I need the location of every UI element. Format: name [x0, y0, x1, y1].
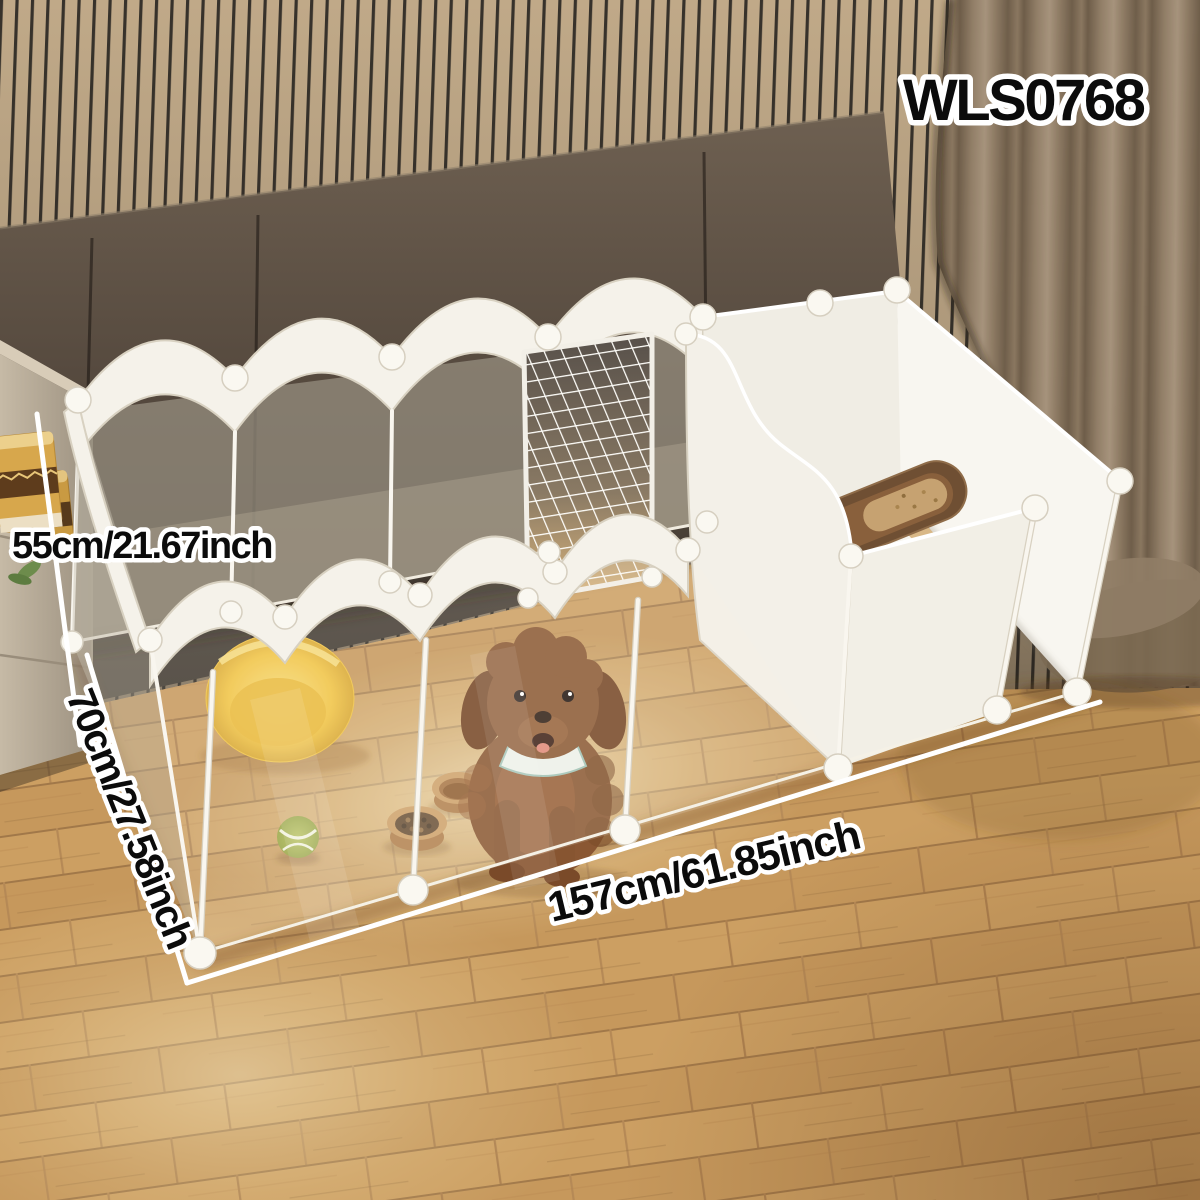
- product-code-label: WLS0768: [903, 68, 1145, 133]
- height-dimension-label: 55cm/21.67inch: [12, 525, 272, 567]
- product-photo: WLS0768 55cm/21.67inch 70cm/27.58inch 15…: [0, 0, 1200, 1200]
